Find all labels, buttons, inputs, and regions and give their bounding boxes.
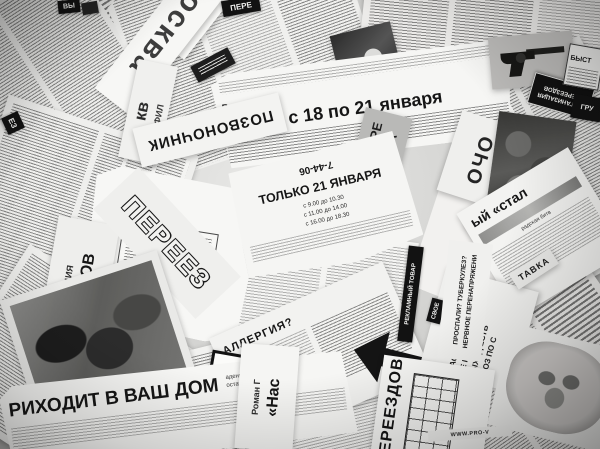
vy-chip: ВЫ — [57, 0, 80, 14]
gruz-chip: ГРУ — [570, 94, 600, 123]
reklamny-label: РЕКЛАМНЫЙ ТОВАР — [404, 263, 418, 325]
byst-label: БЫСТ — [570, 55, 592, 66]
simulated-text-lines — [566, 66, 599, 89]
vy-label: ВЫ — [63, 2, 76, 10]
phone-number: 7-44-06 — [298, 158, 334, 176]
ez-label: ЕЗ — [7, 116, 20, 129]
web-address: WWW.PRO-V — [450, 429, 489, 438]
quote-nas: «Нас — [264, 378, 285, 417]
handgun-icon — [496, 39, 569, 81]
byline-roman: Роман Г — [250, 379, 262, 415]
gruz-label: ГРУ — [580, 103, 594, 112]
inverted-face-photo — [497, 333, 600, 443]
right-edge-ad: БЫСТ — [563, 43, 600, 91]
svoe-label: СВОЕ — [431, 302, 441, 320]
pere-chip-label: ПЕРЕ — [229, 0, 252, 12]
caption-kv: кв — [130, 99, 154, 122]
vertical-byline-scrap: Роман Г «Нас — [234, 343, 299, 449]
newspaper-collage-photo: осква кв ФИЛ Внимание!!! с 18 по 21 янва… — [0, 0, 600, 449]
